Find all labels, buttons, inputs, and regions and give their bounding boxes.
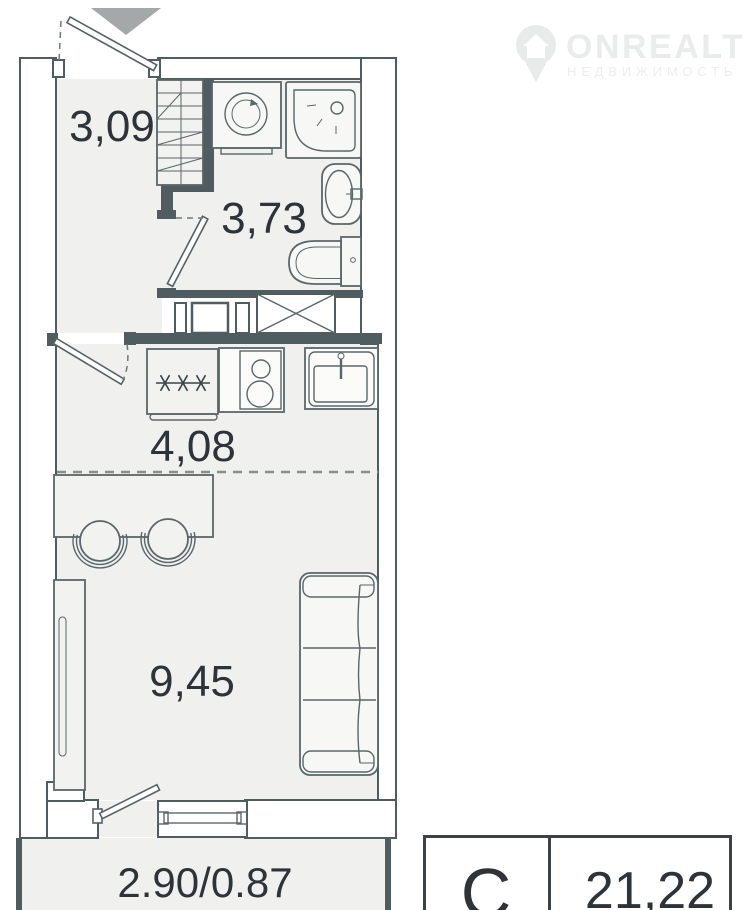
map-pin-house-icon	[516, 25, 556, 82]
window-frame	[158, 801, 247, 837]
wardrobe-icon	[54, 580, 85, 790]
shelving-unit-icon	[157, 80, 203, 185]
legend-border-right	[729, 838, 732, 910]
entrance-door-leaf	[67, 17, 157, 71]
chair-seat	[148, 519, 188, 559]
toilet-icon	[289, 237, 361, 286]
entrance-arrow-icon	[91, 8, 161, 35]
pillar	[236, 303, 249, 333]
onrealt-watermark: ONREALT НЕДВИЖИМОСТЬ	[516, 25, 745, 82]
bathroom-area-label: 3,73	[221, 194, 307, 243]
living-area-label: 9,45	[149, 657, 235, 706]
pillar	[175, 303, 186, 333]
balcony-area-label: 2.90/0.87	[117, 859, 292, 906]
legend-divider	[548, 838, 551, 910]
washer-body	[212, 82, 281, 148]
pillar	[192, 303, 228, 333]
kitchen-door-jamb-right	[124, 332, 136, 345]
dining-table-icon	[54, 475, 213, 537]
sofa-body	[300, 573, 378, 775]
stove-icon	[219, 348, 284, 412]
entrance-door	[59, 17, 157, 71]
bottom-wall-left	[47, 800, 98, 838]
entrance-door-swing-dashed	[59, 21, 61, 62]
legend-type-value: С	[461, 854, 512, 910]
sofa-icon	[300, 573, 378, 775]
left-wall	[20, 58, 56, 838]
shower-tray	[286, 82, 361, 158]
legend-border-left	[423, 835, 426, 910]
bottom-wall-right	[245, 800, 396, 838]
entrance-jamb-left	[53, 60, 64, 77]
kitchen-sink-icon	[305, 348, 378, 409]
bath-door-jamb-top	[157, 210, 176, 219]
balcony-wall-left	[16, 838, 22, 910]
house-body	[527, 46, 545, 58]
washing-machine-icon	[212, 82, 281, 154]
basin-body	[322, 164, 361, 224]
hallway-floor-lower	[56, 192, 162, 333]
ventilation-shaft-icon	[257, 294, 335, 333]
chair-seat	[80, 521, 120, 561]
counter-stove	[219, 348, 284, 412]
balcony-wall-right	[385, 838, 391, 910]
refrigerator-icon	[147, 349, 218, 420]
wash-basin-icon	[322, 164, 362, 224]
window-icon	[158, 801, 247, 837]
kitchen-area-label: 4,08	[150, 422, 236, 471]
shower-icon	[286, 82, 361, 158]
watermark-tagline: НЕДВИЖИМОСТЬ	[567, 64, 737, 79]
floor-plan: ONREALT НЕДВИЖИМОСТЬ	[0, 0, 755, 910]
kitchen-top-wall	[126, 333, 382, 344]
watermark-brand: ONREALT	[566, 28, 745, 66]
floorplan-page: ONREALT НЕДВИЖИМОСТЬ	[0, 0, 755, 910]
legend-table: С 21,22	[423, 835, 732, 910]
legend-border-top	[423, 835, 732, 838]
legend-area-value: 21,22	[585, 862, 715, 910]
hallway-area-label: 3,09	[69, 102, 155, 151]
